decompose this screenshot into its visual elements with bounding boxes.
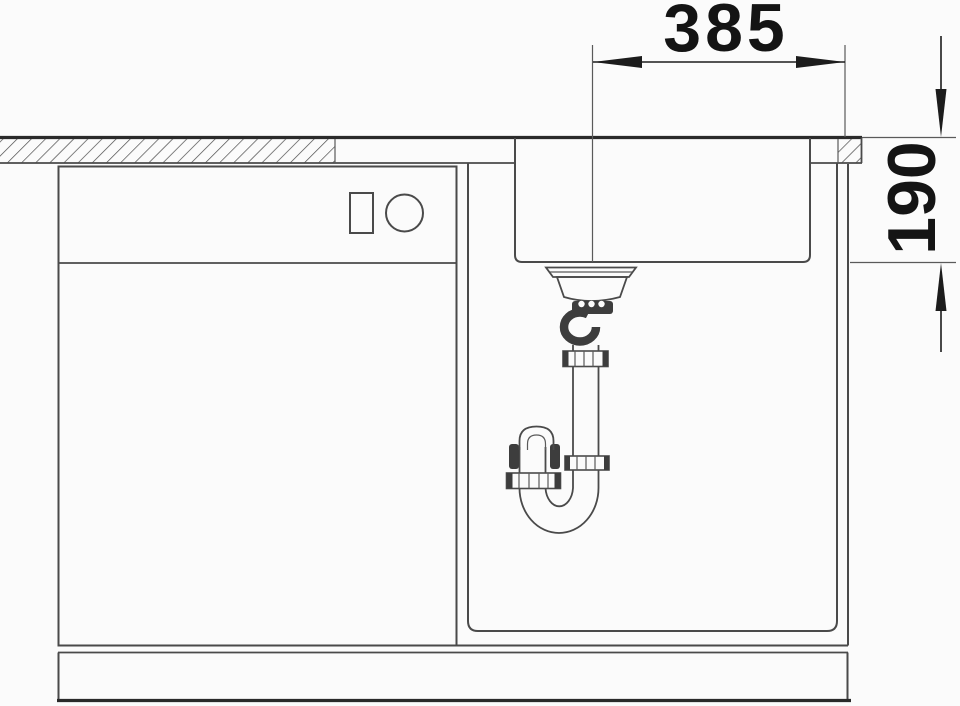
countertop-hatch-right	[838, 139, 862, 163]
riser-nut-nub-right	[550, 444, 560, 469]
riser-bend-inner	[528, 435, 546, 450]
sink-cabinet-interior	[468, 164, 837, 632]
riser-bend-outer	[520, 427, 554, 451]
dishwasher-cabinet	[59, 167, 457, 646]
nut-bump	[598, 301, 604, 307]
riser-nut-band	[507, 473, 561, 489]
trap-nut-band-lower	[565, 456, 609, 470]
nut-bump	[588, 301, 594, 307]
dimension-depth: 190	[850, 36, 956, 352]
dishwasher-control-square	[350, 193, 373, 233]
dimension-width-label: 385	[663, 0, 788, 66]
u-bend-outer	[520, 488, 599, 533]
sink-installation-diagram: 385 190	[0, 0, 960, 706]
dim-arrow-left	[593, 56, 642, 68]
u-bend-inner	[546, 488, 574, 506]
riser-nut-nub-left	[509, 444, 519, 469]
dishwasher-control-circle	[386, 195, 423, 232]
technical-drawing: 385 190	[0, 0, 960, 706]
sink-bowl-outline	[515, 138, 810, 262]
countertop	[0, 138, 862, 164]
sink-cabinet	[468, 164, 848, 646]
trap-elbow-ring	[564, 313, 596, 342]
drain-trap	[507, 268, 637, 534]
dimension-depth-label: 190	[874, 141, 950, 254]
countertop-hatch-left	[0, 139, 335, 163]
nut-bump	[578, 301, 584, 307]
dim-arrow-down	[936, 89, 947, 137]
dim-arrow-right	[796, 56, 845, 68]
strainer-cup	[557, 277, 627, 301]
sink-bowl	[515, 138, 810, 262]
dimension-width: 385	[593, 0, 846, 262]
dishwasher-outline	[59, 167, 457, 646]
cabinet-base	[57, 646, 851, 701]
trap-nut-band-upper	[563, 351, 608, 367]
dim-arrow-up	[936, 263, 947, 311]
